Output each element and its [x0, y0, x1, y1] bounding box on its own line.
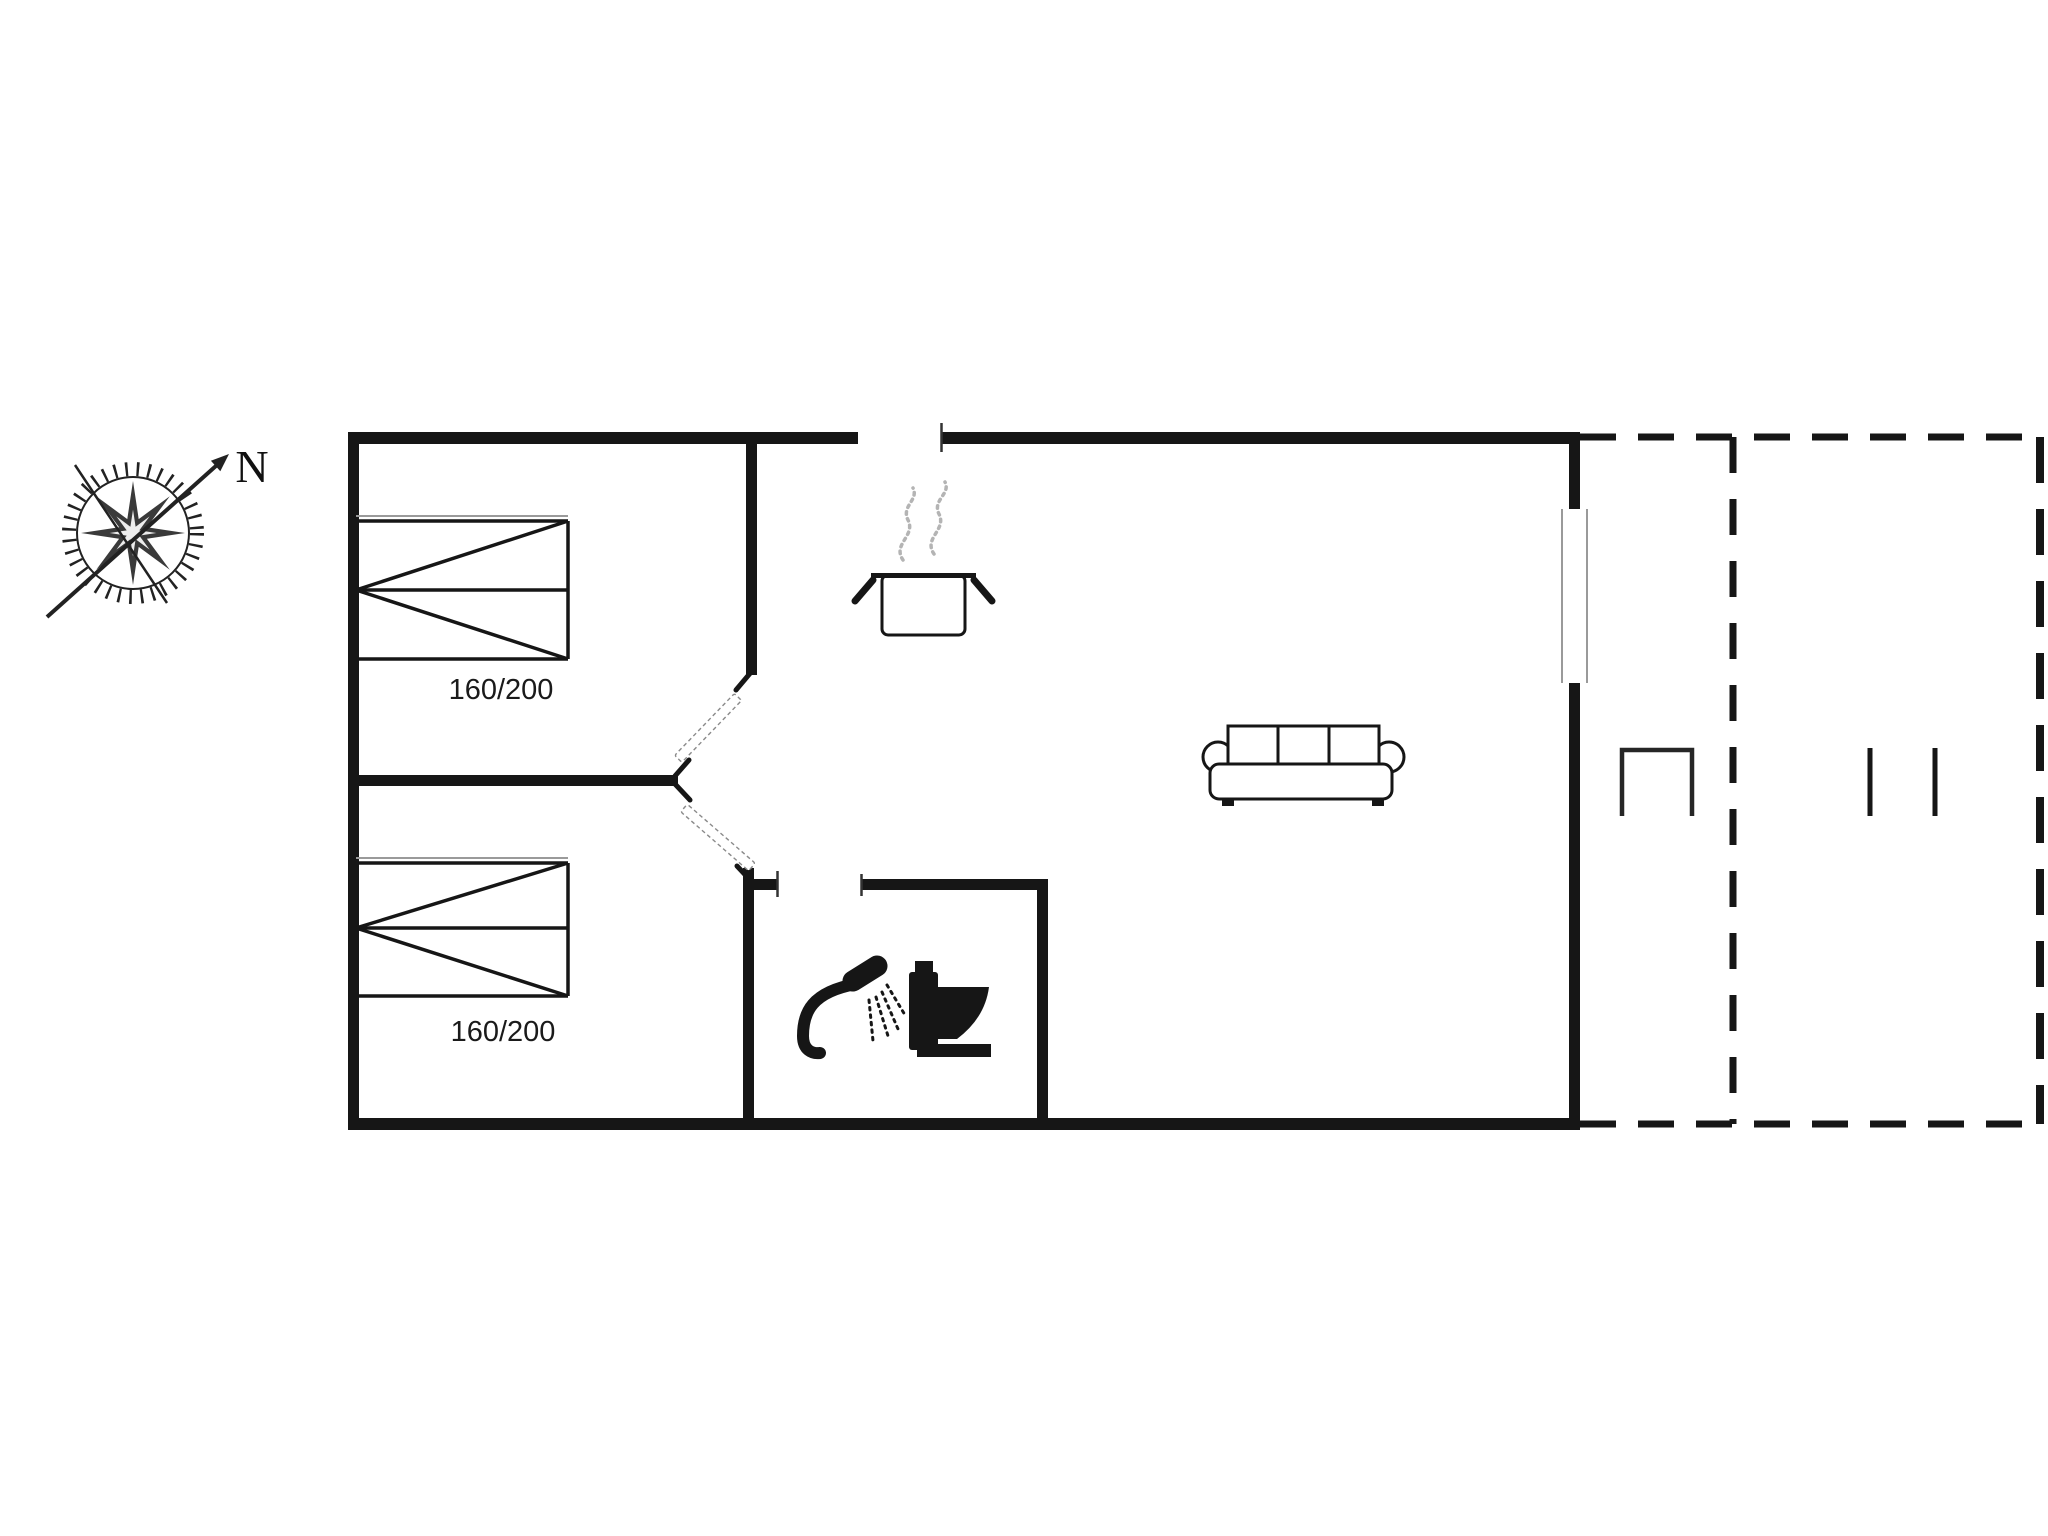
toilet-icon: [909, 961, 991, 1057]
hall-doors: [675, 671, 756, 882]
door-jamb: [736, 671, 752, 690]
compass-rose-icon: N: [47, 441, 269, 617]
door-jamb: [675, 760, 689, 776]
terrace-furniture-icon: [1622, 750, 1692, 816]
pot-handle: [974, 580, 992, 601]
bed-diagonal: [356, 863, 568, 928]
terrace-outline: [1580, 437, 2044, 1124]
door-leaf: [681, 804, 755, 871]
door-leaf: [675, 694, 742, 763]
bathroom-top-wall: [862, 879, 1048, 890]
double-bed-icon: 160/200: [356, 858, 568, 1048]
pot-body: [882, 575, 965, 635]
toilet-tank-cap: [915, 961, 933, 973]
sofa-foot: [1222, 799, 1234, 806]
shower-icon: [803, 966, 905, 1053]
compass-star-inner: [110, 510, 157, 557]
shower-spray: [887, 985, 905, 1015]
cooking-pot-icon: [855, 482, 992, 635]
shower-hose: [803, 984, 856, 1053]
terrace-items: [1622, 748, 1935, 816]
pot-handle: [855, 580, 873, 601]
bed-size-label: 160/200: [451, 1016, 556, 1048]
sofa-foot: [1372, 799, 1384, 806]
top-wall-right-segment: [941, 432, 1580, 444]
shower-spray: [869, 1000, 873, 1041]
shower-spray: [876, 997, 888, 1036]
bedroom-divider-wall: [352, 775, 678, 786]
steam-icon: [931, 482, 946, 554]
double-bed-icon: 160/200: [356, 516, 568, 706]
shower-head: [853, 966, 877, 981]
toilet-base: [917, 1044, 991, 1057]
bed-diagonal: [356, 521, 568, 590]
toilet-bowl: [938, 987, 989, 1039]
steam-icon: [900, 488, 914, 560]
bottom-wall: [348, 1118, 1580, 1130]
toilet-tank: [909, 972, 938, 1050]
floor-plan: N: [0, 0, 2048, 1536]
window-gap: [1561, 509, 1589, 683]
top-wall-left-segment: [348, 432, 858, 444]
bed-size-label: 160/200: [449, 674, 554, 706]
bedroom1-kitchen-wall: [746, 443, 757, 675]
bed-diagonal: [356, 928, 568, 996]
bathroom-right-wall: [1037, 879, 1048, 1118]
bathroom-top-wall-stub: [754, 879, 778, 890]
window-marker: [1561, 509, 1589, 683]
sofa-icon: [1203, 726, 1404, 806]
door-jamb: [675, 784, 690, 800]
north-label: N: [235, 441, 268, 492]
sofa-seat: [1210, 764, 1392, 799]
bed-diagonal: [356, 590, 568, 659]
bathroom-left-wall: [743, 868, 754, 1118]
